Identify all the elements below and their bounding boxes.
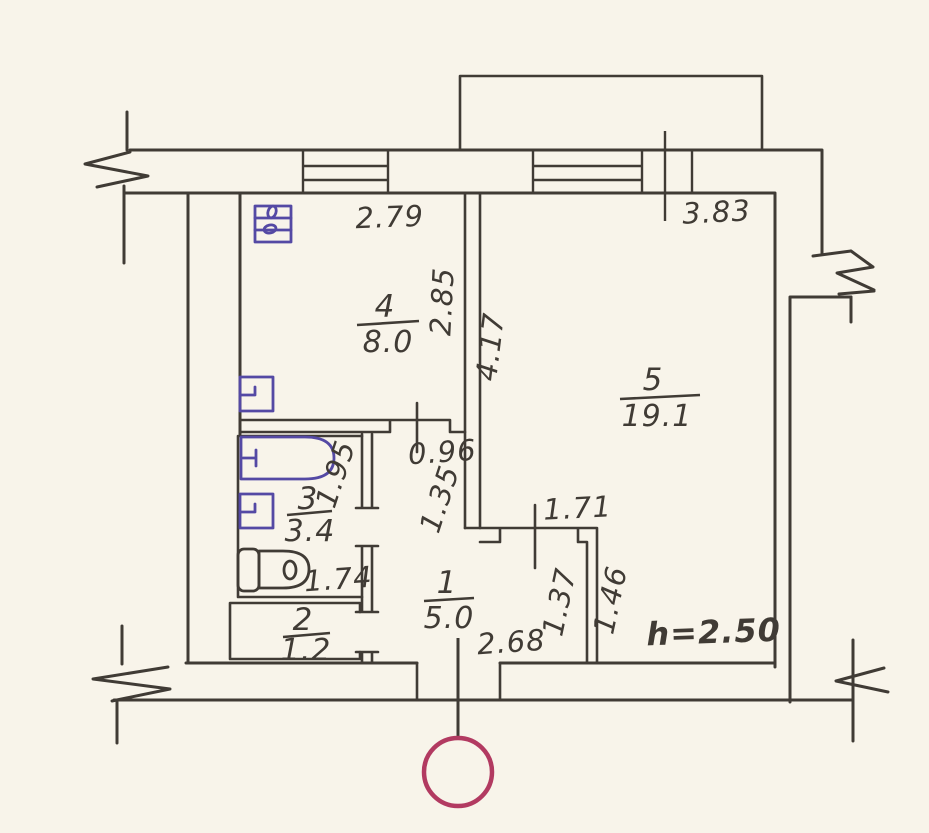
break-top-left [85,112,148,263]
dim-kitchen-depth: 2.85 [423,266,461,336]
dim-toilet-span: 1.74 [303,560,374,599]
floor-plan-drawing: 4 8.0 5 19.1 3 3.4 2 1.2 1 5.0 2.79 2.85… [0,0,929,833]
dim-kitchen-width: 2.79 [355,199,425,235]
balcony [460,76,762,150]
room-label-hall: 1 5.0 [424,565,475,636]
dim-hall-width: 2.68 [476,623,547,662]
bathroom-area: 3.4 [285,514,336,549]
hall-number: 1 [437,565,458,601]
break-bottom-right [836,640,888,741]
kitchen-area: 8.0 [363,325,414,360]
living-number: 5 [643,362,664,398]
stove-icon [255,205,291,242]
dim-niche-right: 1.46 [586,563,634,637]
dim-living-depth: 4.17 [469,311,511,383]
room-label-living: 5 19.1 [620,362,700,434]
kitchen-window [303,150,388,193]
room-label-kitchen: 4 8.0 [357,289,419,360]
kitchen-hall-wall [240,420,465,432]
kitchen-sink-icon [240,377,273,411]
balcony-outline [460,76,762,150]
living-area: 19.1 [622,399,693,434]
kitchen-number: 4 [375,289,396,325]
ceiling-height-note: h=2.50 [646,611,782,654]
living-window [533,150,642,193]
washbasin-icon [240,494,273,528]
toilet-icon [238,549,309,591]
break-top-right [813,251,874,294]
right-wall-outer [790,297,851,702]
closet-area: 1.2 [281,633,332,668]
hall-area: 5.0 [424,601,475,636]
dim-niche-width: 1.71 [542,489,612,527]
break-bottom-left [93,626,170,743]
entrance-circle [424,738,492,806]
floor-plan-sheet: 4 8.0 5 19.1 3 3.4 2 1.2 1 5.0 2.79 2.85… [0,0,929,833]
dim-hall-side: 1.35 [413,461,467,537]
dim-bath-length: 1.95 [309,436,363,512]
room-label-closet: 2 1.2 [281,602,332,668]
bath-hall-partition [356,434,378,663]
dim-living-width: 3.83 [681,193,751,231]
entrance-marker [424,638,492,806]
